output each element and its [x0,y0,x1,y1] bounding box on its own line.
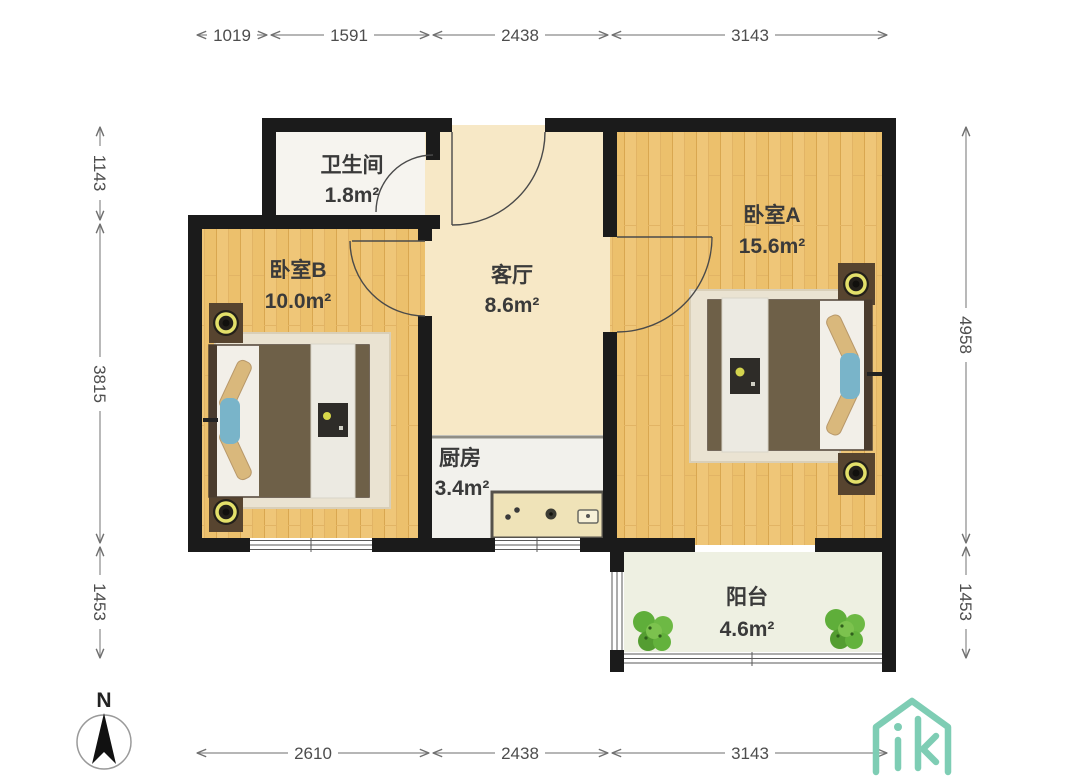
dim-top-4: 3143 [731,26,769,45]
window [250,538,372,552]
dim-top-1: 1019 [213,26,251,45]
kitchen-label: 厨房 [439,446,481,470]
dim-right-1: 4958 [956,316,975,354]
bathroom-area: 1.8m² [325,184,380,207]
bedroom-b-label: 卧室B [269,258,326,282]
table-lamp-icon [213,310,239,336]
bedroom-b-furniture [203,303,390,532]
dim-left-3: 1453 [90,583,109,621]
bed [708,298,872,452]
bedroom-b-area: 10.0m² [265,290,332,313]
kitchen-counter [492,492,603,538]
dim-bottom-3: 3143 [731,744,769,763]
bathroom-label: 卫生间 [321,153,384,177]
table-lamp-icon [843,460,869,486]
compass-north-label: N [96,689,111,712]
table-lamp-icon [213,499,239,525]
dim-right-2: 1453 [956,583,975,621]
bed-tray [730,358,760,394]
dim-left-1: 1143 [90,155,109,192]
dim-left-2: 3815 [90,365,109,403]
dim-top-2: 1591 [330,26,368,45]
living-room-label: 客厅 [491,263,533,287]
balcony-side-window [610,572,624,650]
bedroom-a-area: 15.6m² [739,235,806,258]
floorplan-canvas: 卫生间 1.8m² 客厅 8.6m² 厨房 3.4m² 卧室A 15.6m² 卧… [0,0,1080,780]
window [495,538,580,552]
plant-icon [633,611,673,651]
stove-knob-icon [505,514,511,520]
dim-top-3: 2438 [501,26,539,45]
bedroom-a-furniture [690,263,882,495]
kitchen-area: 3.4m² [435,477,490,500]
bed-tray [318,403,348,437]
bed [209,344,369,498]
compass-icon: N [77,689,131,769]
table-lamp-icon [843,271,869,297]
plant-icon [825,609,865,649]
bedroom-a-label: 卧室A [743,203,800,227]
balcony-window [624,652,882,666]
balcony-label: 阳台 [726,585,768,609]
living-room-area: 8.6m² [485,294,540,317]
throw-blanket [220,398,240,444]
dim-bottom-2: 2438 [501,744,539,763]
logo-house-icon [876,701,948,772]
balcony-area: 4.6m² [720,618,775,641]
stove-knob-icon [514,507,520,513]
throw-blanket [840,353,860,399]
floorplan-svg: 卫生间 1.8m² 客厅 8.6m² 厨房 3.4m² 卧室A 15.6m² 卧… [0,0,1080,780]
dim-bottom-1: 2610 [294,744,332,763]
